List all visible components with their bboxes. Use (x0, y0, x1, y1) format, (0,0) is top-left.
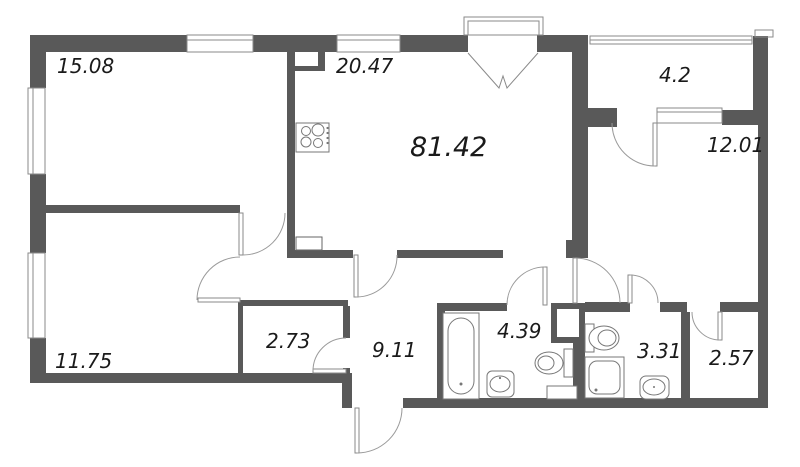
balcony-door-leaf (653, 123, 657, 166)
room-area-label-top-left: 15.08 (57, 54, 114, 78)
wall (720, 302, 758, 312)
bathtub-icon (443, 313, 479, 399)
toilet-icon (535, 349, 573, 377)
door-leaf (718, 312, 722, 340)
wall (343, 306, 350, 338)
wall (722, 110, 758, 125)
room-area-label-bedroom-right: 12.01 (707, 133, 764, 157)
wall (238, 306, 243, 373)
wall (572, 35, 588, 258)
door-arc (243, 213, 285, 255)
door-leaf (239, 213, 243, 255)
floor-plan-svg: 15.08 20.47 81.42 4.2 12.01 11.75 2.73 9… (0, 0, 800, 467)
floor-plan: 15.08 20.47 81.42 4.2 12.01 11.75 2.73 9… (0, 0, 800, 467)
area-labels: 15.08 20.47 81.42 4.2 12.01 11.75 2.73 9… (55, 54, 764, 373)
total-area-label: 81.42 (410, 132, 487, 163)
door-arc (313, 338, 346, 371)
entrance-door-arc (357, 408, 402, 453)
wall (566, 240, 588, 258)
wall (660, 302, 687, 312)
door-leaf (573, 258, 577, 303)
parapet-ledge (755, 30, 773, 37)
sink-icon (487, 371, 514, 397)
room-area-label-loggia: 4.2 (659, 63, 691, 87)
vent-duct (296, 237, 322, 250)
wall (397, 250, 503, 258)
door-arc (197, 257, 240, 300)
balcony-threshold (464, 17, 543, 35)
room-area-label-kitchen-living: 20.47 (336, 54, 394, 78)
wall (287, 250, 353, 258)
door-arc (507, 267, 545, 305)
window (187, 35, 253, 52)
door-leaf (543, 267, 547, 305)
wall (585, 302, 630, 312)
door-leaf (313, 369, 346, 373)
entrance-door-leaf (355, 408, 359, 453)
window (28, 253, 45, 338)
shower-icon (585, 357, 624, 398)
wall (588, 108, 617, 127)
wall (342, 373, 352, 408)
window (657, 108, 722, 123)
wall (681, 312, 690, 408)
wall (30, 373, 342, 383)
room-area-label-bottom-left: 11.75 (55, 349, 112, 373)
wall (758, 125, 768, 408)
wall (400, 35, 468, 52)
wall (30, 35, 187, 52)
window (28, 88, 45, 174)
door-leaf (628, 275, 632, 303)
room-area-label-corridor: 9.11 (372, 338, 417, 362)
sink-icon (640, 376, 669, 399)
wall (287, 52, 295, 252)
double-entry-door-leaves (468, 53, 538, 88)
wall (30, 52, 46, 88)
wall (30, 174, 46, 253)
wall (437, 303, 507, 311)
room-area-label-closet: 2.73 (266, 329, 311, 353)
wall (46, 205, 240, 213)
washer-cabinet-icon (547, 386, 577, 399)
wall (295, 66, 325, 71)
wall (318, 52, 325, 68)
door-leaf (198, 298, 240, 302)
balcony-threshold-inner (468, 21, 539, 35)
stove-icon (296, 123, 329, 152)
door-leaf (354, 255, 358, 297)
room-area-label-wardrobe: 2.57 (709, 346, 754, 370)
wall (253, 35, 337, 52)
door-arc (630, 275, 658, 303)
room-area-label-wc: 3.31 (637, 339, 682, 363)
balcony-door-arc (612, 123, 655, 166)
toilet-icon (585, 324, 619, 352)
room-area-label-bathroom: 4.39 (497, 319, 542, 343)
wall (238, 300, 348, 306)
duct-shaft-core (557, 309, 579, 337)
door-arc (575, 258, 620, 303)
window (337, 35, 400, 52)
door-arc (692, 312, 720, 340)
door-arc (356, 255, 397, 297)
